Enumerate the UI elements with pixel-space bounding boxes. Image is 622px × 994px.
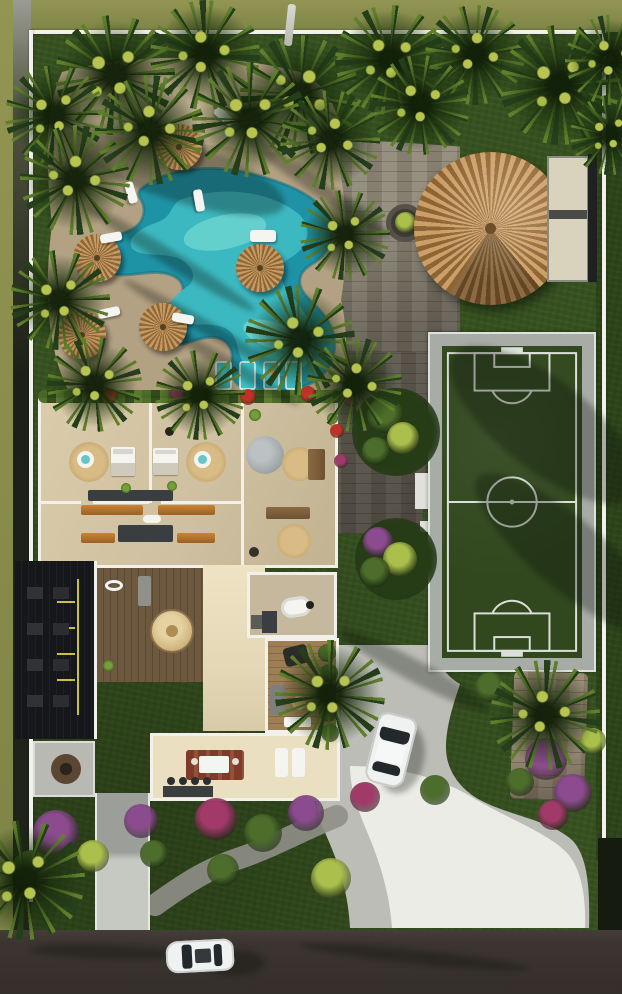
pergola-light-strip-1: [57, 601, 75, 603]
wall-bedrooms-divider: [149, 401, 152, 503]
dining-bench-row2-left: [81, 533, 115, 543]
bedroom1-bed: [111, 447, 135, 476]
bed1-shrub-yellow: [387, 422, 419, 454]
south-garden-green-2: [244, 814, 282, 852]
bedroom2-plunge-pool: [194, 451, 211, 468]
bedroom2-bed: [153, 448, 178, 475]
deck-hammock: [105, 580, 123, 591]
car-street-windshield: [181, 944, 192, 968]
thatch-umbrella-4: [236, 244, 284, 292]
daybed-cushion: [166, 625, 178, 637]
car-street-rear-window: [213, 944, 222, 966]
pergola-light-strip-v: [77, 579, 79, 715]
pergola-table-1: [27, 587, 43, 599]
car-street-sunroof: [195, 948, 212, 963]
pergola-table-4: [53, 623, 69, 635]
south-garden-green-5: [140, 840, 168, 868]
palapa-bench-row: [588, 154, 597, 282]
bar-counter: [163, 786, 213, 797]
right-garden-green-2: [506, 768, 534, 796]
dining-bench-row2-right: [177, 533, 215, 543]
palm-tree-15: [300, 190, 390, 280]
lounge-bench-wood: [266, 507, 310, 519]
palapa-roof-cap: [485, 223, 496, 234]
wall-living-h2: [93, 501, 149, 504]
pergola-table-2: [53, 587, 69, 599]
bar-stool-2: [179, 777, 187, 785]
bar-stool-3: [191, 777, 199, 785]
deck-mat: [138, 576, 151, 606]
wall-living-h1: [41, 501, 81, 504]
bath-stool: [306, 601, 314, 609]
coffee-table: [143, 515, 161, 523]
living-plant-2: [167, 481, 177, 491]
pool-daybed: [250, 230, 276, 242]
palapa-deck-band: [549, 210, 587, 219]
wall-living-h3: [161, 501, 241, 504]
shower-pad: [251, 615, 262, 629]
bar-stool-1: [167, 777, 175, 785]
pergola-table-8: [53, 695, 69, 707]
bar-stool-4: [203, 777, 211, 785]
lounge-stool: [249, 547, 259, 557]
pergola-table-7: [27, 695, 43, 707]
south-garden-yellow-2: [311, 858, 351, 898]
dining-bench-row1-right: [158, 505, 215, 515]
bed1-shrub-green-2: [362, 437, 390, 465]
pergola-light-strip-4: [57, 679, 75, 681]
dining-chair-1: [191, 758, 198, 765]
terrace-lounger-2: [292, 748, 305, 777]
pergola-light-strip-3: [57, 653, 75, 655]
south-garden-magenta-1: [195, 798, 237, 840]
right-garden-magenta: [538, 800, 568, 830]
bed2-shrub-green: [360, 557, 390, 587]
lounge-rug: [277, 524, 311, 558]
dining-table: [199, 756, 229, 773]
south-garden-green-3: [207, 854, 239, 886]
kitchen-counter-wall: [88, 490, 173, 501]
palm-tree-13: [10, 250, 110, 350]
palm-tree-18: [155, 350, 245, 440]
street-asphalt: [0, 930, 622, 994]
pergola-table-6: [53, 659, 69, 671]
aerial-site-plan-render: [0, 0, 622, 994]
bath-vanity: [262, 611, 277, 633]
wall-flower-2: [334, 454, 348, 468]
terrace-lounger-1: [275, 748, 288, 777]
deck-plant: [103, 660, 114, 671]
dining-bench-row1-left: [81, 505, 143, 515]
car-street: [165, 938, 235, 974]
pergola-table-5: [27, 659, 43, 671]
palapa-side-deck: [547, 156, 589, 282]
patio-wood-table: [308, 449, 325, 480]
south-garden-purple-3: [288, 795, 324, 831]
south-garden-magenta-2: [350, 782, 380, 812]
living-plant-1: [121, 483, 131, 493]
pavilion-firepit: [51, 754, 81, 784]
pergola-roof: [15, 561, 97, 739]
pergola-table-3: [27, 623, 43, 635]
garden-pavilion: [33, 741, 95, 797]
bathroom: [247, 572, 337, 638]
dining-chair-2: [232, 758, 239, 765]
patio-stone-shower: [246, 436, 284, 474]
south-garden-green-4: [420, 775, 450, 805]
patio-plant-1: [249, 409, 261, 421]
south-garden-purple-2: [124, 804, 158, 838]
wood-deck: [97, 568, 203, 682]
kitchen-island: [118, 525, 173, 542]
thatch-umbrella-3: [139, 303, 187, 351]
bedroom1-plunge-pool: [77, 451, 94, 468]
wall-patio-divider: [241, 401, 244, 565]
